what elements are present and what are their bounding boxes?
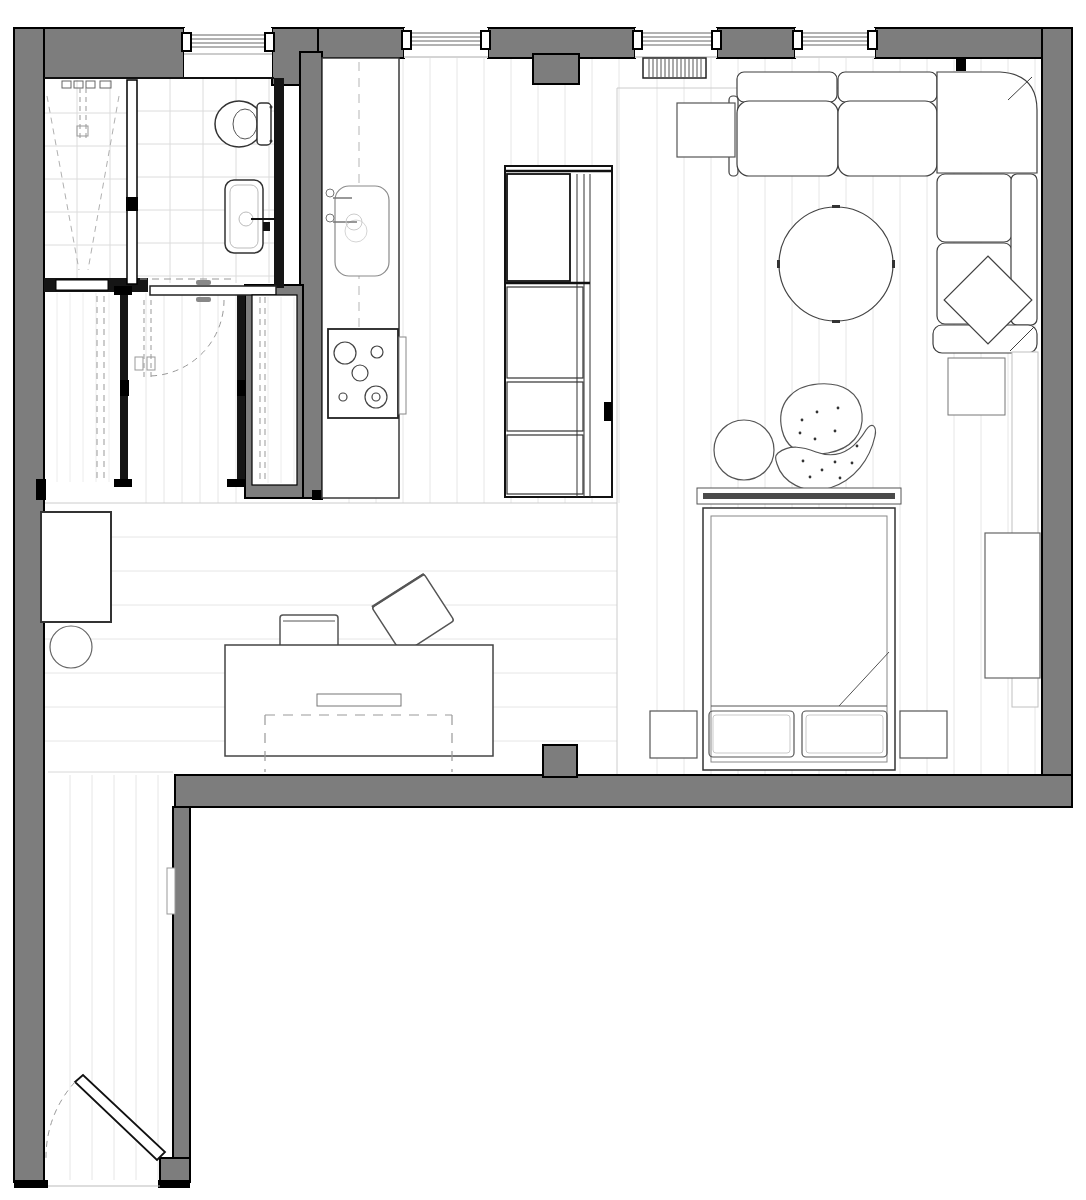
partition-shower-glass	[127, 80, 137, 284]
ottoman	[714, 420, 774, 480]
sofa-back-cushion	[737, 72, 837, 102]
door-jamb	[36, 479, 46, 500]
window-3-jamb	[712, 31, 721, 49]
entry-door-swing-arc	[46, 1082, 75, 1158]
tall-cabinet	[505, 166, 612, 497]
wall-pier-bottom	[543, 745, 577, 777]
floor-plan-canvas	[0, 0, 1086, 1200]
window-3-jamb	[633, 31, 642, 49]
desk-keyboard	[317, 694, 401, 706]
sofa-back-cushion	[838, 72, 937, 102]
dresser	[985, 533, 1040, 678]
column-marker	[956, 58, 966, 71]
door-jamb	[120, 380, 129, 396]
window-4-jamb	[793, 31, 802, 49]
kitchen-counter	[322, 58, 399, 498]
wall-top-a	[318, 28, 404, 58]
table-mark	[832, 205, 840, 208]
kitchen-sink	[335, 186, 389, 276]
wall-corridor-right	[173, 807, 190, 1182]
shower-head-icon	[100, 81, 111, 88]
window-2-jamb	[402, 31, 411, 49]
wall-bottom	[175, 775, 1072, 807]
window-1-jamb	[182, 33, 191, 51]
shower-valve-icon	[62, 81, 71, 88]
bed-frame	[703, 508, 895, 770]
closet-right-niche	[252, 295, 297, 485]
bath-bottom-niche	[56, 280, 108, 290]
door-jamb	[114, 479, 132, 487]
door-handle-icon	[135, 357, 143, 370]
window-2-jamb	[481, 31, 490, 49]
wall-cap-left	[14, 1180, 48, 1188]
desk-chair	[280, 615, 338, 648]
cabinet-handle	[604, 402, 612, 421]
shower-slope-line	[47, 96, 79, 270]
desk-chair-rotated	[372, 574, 454, 655]
round-table	[779, 207, 893, 321]
sofa-seat-cushion	[838, 101, 937, 176]
toilet-bowl	[215, 101, 263, 147]
sofa-seat-cushion	[937, 174, 1012, 242]
partition-shower-post	[126, 197, 138, 211]
door-handle-icon	[196, 297, 211, 302]
tv-screen	[703, 493, 895, 499]
wall-pier-top	[533, 54, 579, 84]
wall-cap-right	[158, 1180, 190, 1188]
floor-plan-svg	[0, 0, 1086, 1200]
floor-hall-planks	[146, 293, 236, 503]
toilet-tank	[257, 103, 271, 145]
window-1-jamb	[265, 33, 274, 51]
armchair-back	[781, 384, 862, 454]
shower-valve-icon	[74, 81, 83, 88]
wall-niche	[167, 868, 175, 914]
wall-corridor-foot	[160, 1158, 190, 1182]
window-4-jamb	[868, 31, 877, 49]
bath-sink	[225, 180, 263, 253]
oven-handle	[399, 337, 406, 414]
nightstand	[900, 711, 947, 758]
door-jamb	[114, 286, 132, 295]
sofa-side-table	[677, 103, 735, 157]
shower-slope-line	[88, 96, 119, 270]
sofa-seat-cushion	[737, 101, 838, 176]
study-stool	[50, 626, 92, 668]
wall-top-c	[717, 28, 795, 58]
nightstand	[650, 711, 697, 758]
bath-slide-door	[150, 286, 276, 295]
cooktop	[328, 329, 398, 418]
table-mark	[832, 320, 840, 323]
study-cabinet	[41, 512, 111, 622]
bath-faucet-knob	[263, 222, 270, 231]
hall-door-swing-arc	[148, 300, 224, 376]
table-mark	[892, 260, 895, 268]
shower-valve-icon	[86, 81, 95, 88]
wall-wc-right	[274, 78, 284, 288]
door-jamb	[227, 479, 245, 487]
wall-right	[1042, 28, 1072, 807]
side-table-right	[948, 358, 1005, 415]
wall-left	[14, 28, 44, 1182]
entry-door-leaf	[75, 1075, 165, 1160]
door-jamb	[237, 380, 246, 396]
floor-closet-left-planks	[57, 293, 109, 482]
door-handle-icon	[196, 280, 211, 285]
table-mark	[777, 260, 780, 268]
